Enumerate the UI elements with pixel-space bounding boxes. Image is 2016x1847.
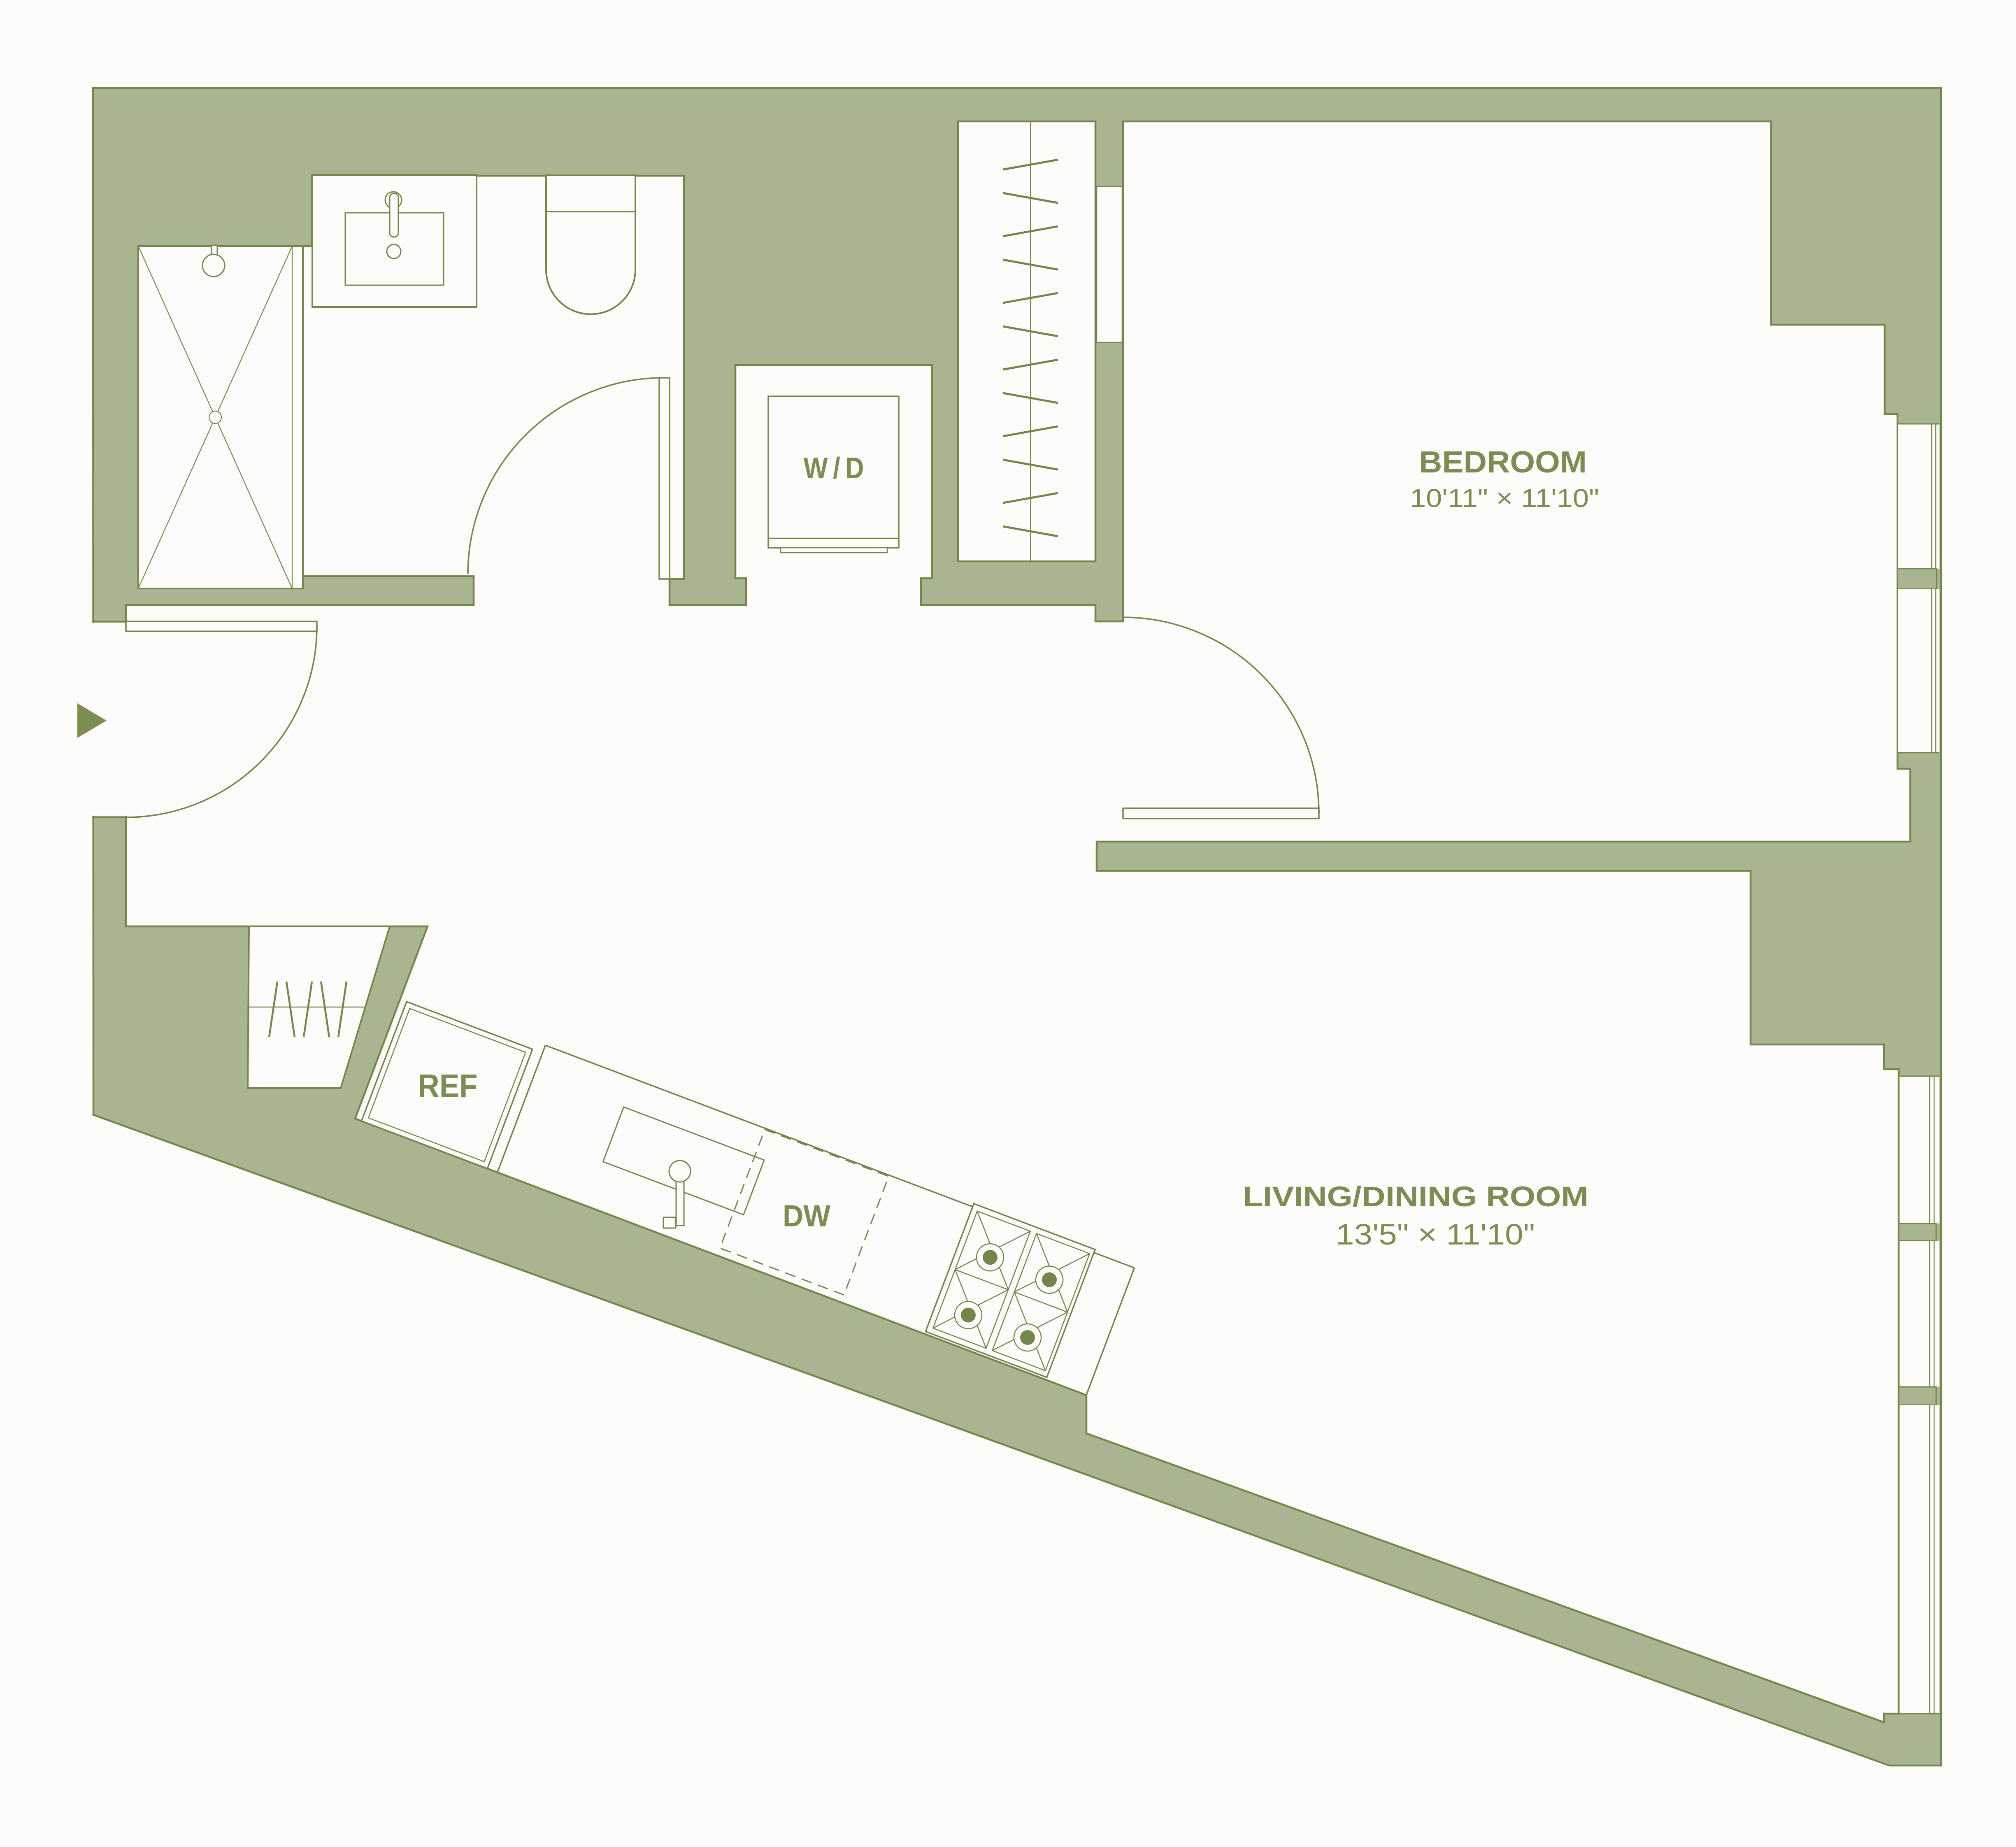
svg-text:BEDROOM: BEDROOM xyxy=(1419,445,1587,479)
svg-text:REF: REF xyxy=(418,1068,478,1104)
svg-text:LIVING/DINING ROOM: LIVING/DINING ROOM xyxy=(1243,1181,1588,1212)
svg-text:W / D: W / D xyxy=(804,452,864,485)
svg-text:13'5" × 11'10": 13'5" × 11'10" xyxy=(1336,1219,1535,1251)
svg-text:10'11" × 11'10": 10'11" × 11'10" xyxy=(1410,484,1599,513)
svg-text:DW: DW xyxy=(783,1199,830,1233)
